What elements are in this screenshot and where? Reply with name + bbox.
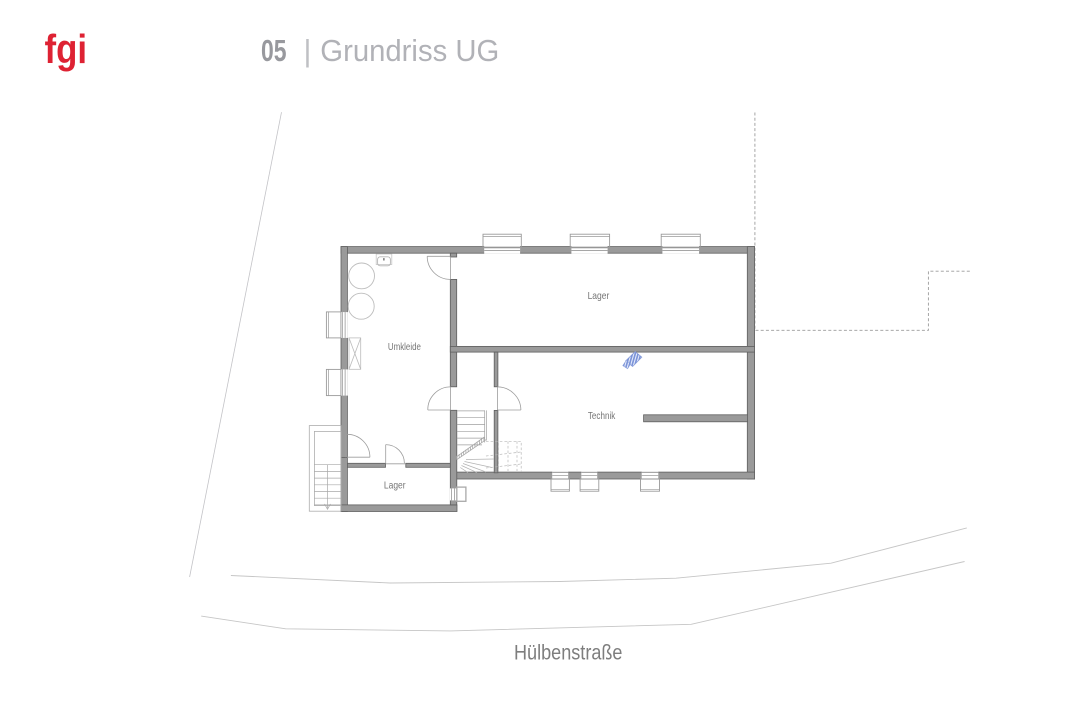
svg-text:fgi: fgi	[45, 26, 88, 72]
svg-text:Lager: Lager	[588, 291, 610, 302]
svg-text:Grundriss UG: Grundriss UG	[320, 34, 499, 68]
svg-text:Lager: Lager	[384, 481, 406, 492]
svg-text:Hülbenstraße: Hülbenstraße	[514, 640, 623, 665]
svg-text:Umkleide: Umkleide	[388, 342, 421, 353]
svg-text:05: 05	[261, 34, 287, 68]
svg-text:Technik: Technik	[588, 411, 616, 422]
svg-text:|: |	[304, 34, 312, 68]
